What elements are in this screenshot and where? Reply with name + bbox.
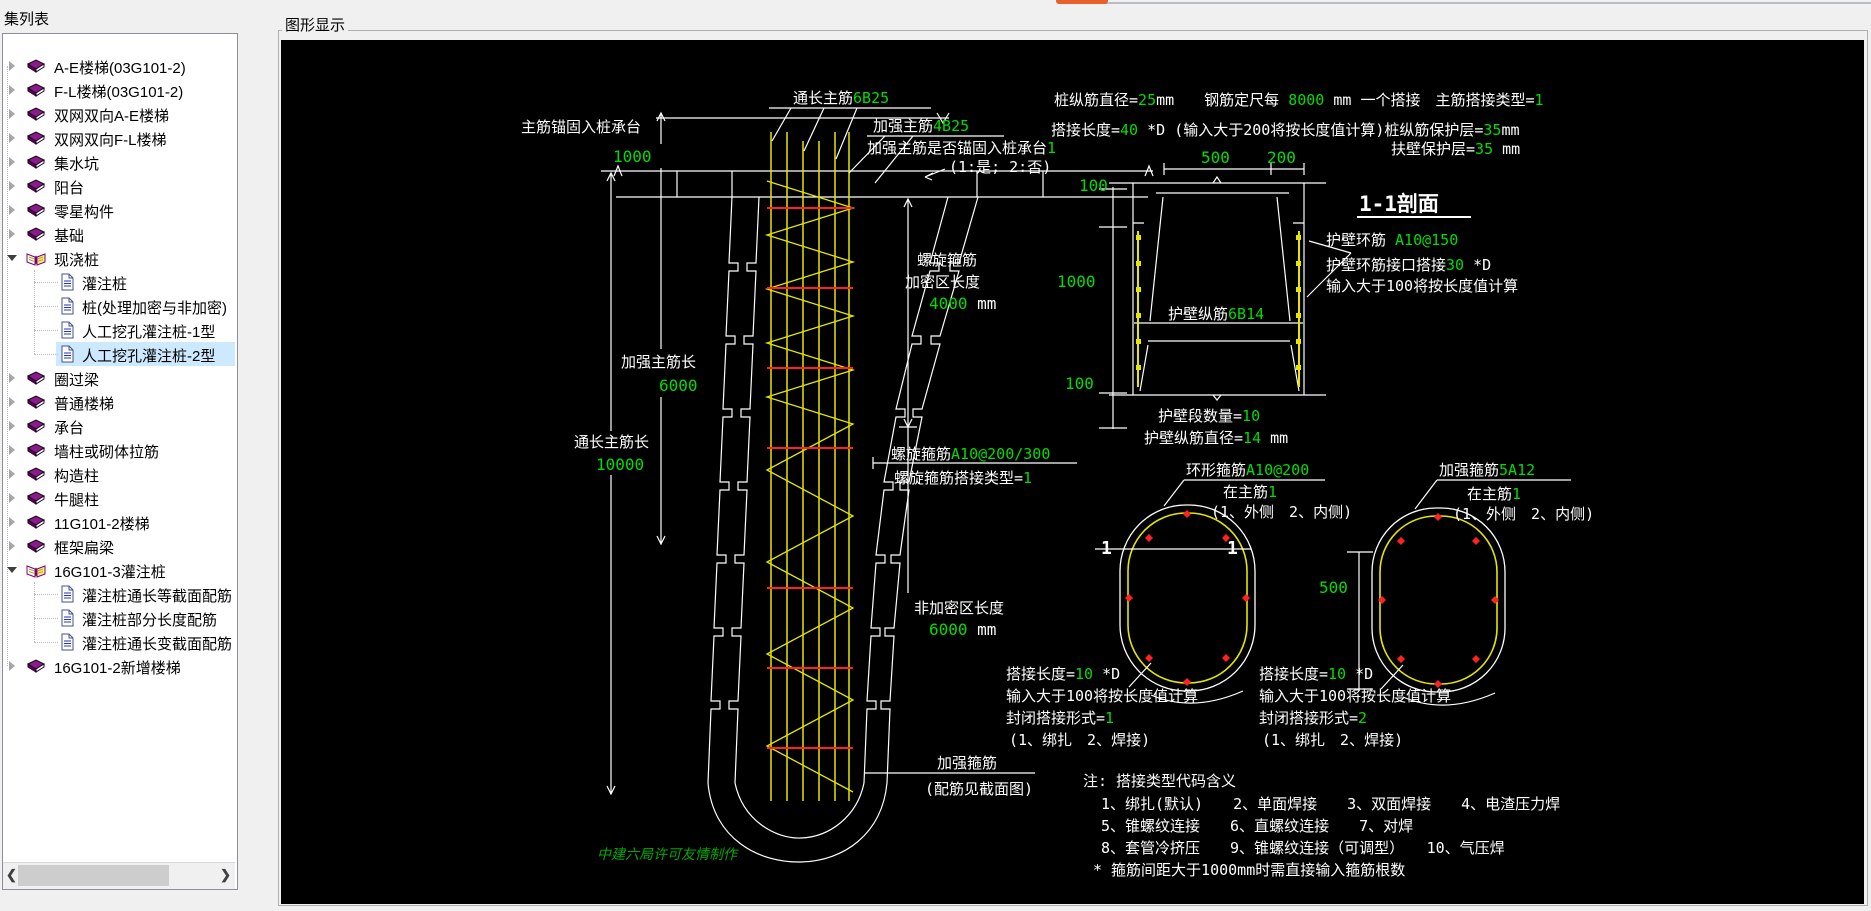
label-sparse-zone: 非加密区长度 bbox=[914, 599, 1004, 617]
tree-item-label: F-L楼梯(03G101-2) bbox=[54, 81, 183, 102]
scrollbar-thumb[interactable] bbox=[18, 865, 169, 886]
tree-item-23[interactable]: 灌注桩部分长度配筋 bbox=[4, 606, 235, 630]
tree-item-label: 11G101-2楼梯 bbox=[54, 513, 150, 534]
label-bottom-hoop-note: (配筋见截面图) bbox=[925, 780, 1033, 798]
chevron-right-icon[interactable] bbox=[9, 133, 15, 143]
lap-left-form: 封闭搭接形式=1 bbox=[1006, 709, 1114, 727]
tree-item-label: A-E楼梯(03G101-2) bbox=[54, 57, 186, 78]
label-wall-count: 护壁段数量=10 bbox=[1158, 407, 1260, 425]
tree-guide-stub bbox=[34, 642, 58, 643]
chevron-right-icon[interactable] bbox=[9, 157, 15, 167]
tree-item-24[interactable]: 灌注桩通长变截面配筋 bbox=[4, 630, 235, 654]
tree-item-18[interactable]: 牛腿柱 bbox=[4, 486, 235, 510]
sidebar-title: 集列表 bbox=[1, 8, 52, 29]
tree-item-label: 构造柱 bbox=[54, 465, 99, 486]
book-icon bbox=[25, 657, 47, 675]
chevron-right-icon[interactable] bbox=[9, 661, 15, 671]
open-book-icon bbox=[25, 249, 47, 267]
book-icon bbox=[25, 465, 47, 483]
label-wall-hoop: 护壁环筋 A10@150 bbox=[1326, 231, 1458, 249]
chevron-right-icon[interactable] bbox=[9, 493, 15, 503]
tree-item-label: 灌注桩 bbox=[82, 273, 127, 294]
book-icon bbox=[25, 441, 47, 459]
label-wall-vbars: 护壁纵筋6B14 bbox=[1168, 305, 1264, 323]
book-icon bbox=[25, 393, 47, 411]
scroll-right-button[interactable]: ❯ bbox=[220, 867, 231, 883]
book-icon bbox=[25, 153, 47, 171]
lap-right-form: 封闭搭接形式=2 bbox=[1259, 709, 1367, 727]
tree-item-label: 墙柱或砌体拉筋 bbox=[54, 441, 159, 462]
lap-left-note: 输入大于100将按长度值计算 bbox=[1006, 687, 1198, 705]
section-title: 1-1剖面 bbox=[1359, 192, 1439, 216]
label-bottom-hoop: 加强箍筋 bbox=[937, 754, 997, 772]
tree-item-label: 16G101-2新增楼梯 bbox=[54, 657, 181, 678]
tree-guide-stub bbox=[34, 354, 58, 355]
section-mark-right: 1 bbox=[1227, 538, 1238, 559]
strengthen-stirrup-options: (1、外侧 2、内侧) bbox=[1453, 505, 1594, 523]
tree-item-12[interactable]: 人工挖孔灌注桩-2型 bbox=[4, 342, 235, 366]
atlas-list-panel: 集列表 A-E楼梯(03G101-2)F-L楼梯(03G101-2)双网双向A-… bbox=[2, 33, 238, 890]
book-icon bbox=[25, 129, 47, 147]
tree-item-label: 集水坑 bbox=[54, 153, 99, 174]
book-icon bbox=[25, 225, 47, 243]
book-icon bbox=[25, 417, 47, 435]
lap-left-options: (1、绑扎 2、焊接) bbox=[1009, 731, 1150, 749]
tree-item-label: 灌注桩部分长度配筋 bbox=[82, 609, 217, 630]
chevron-right-icon[interactable] bbox=[9, 469, 15, 479]
dim-oval-500: 500 bbox=[1319, 578, 1348, 597]
tree-item-9[interactable]: 灌注桩 bbox=[4, 270, 235, 294]
document-icon bbox=[60, 321, 75, 339]
dim-100-top: 100 bbox=[1079, 176, 1108, 195]
chevron-right-icon[interactable] bbox=[9, 61, 15, 71]
tree-item-2[interactable]: 双网双向A-E楼梯 bbox=[4, 102, 235, 126]
book-icon bbox=[25, 201, 47, 219]
strengthen-stirrup-position: 在主筋1 bbox=[1467, 485, 1521, 503]
param-line-2: 搭接长度=40 *D (输入大于200将按长度值计算)桩纵筋保护层=35mm bbox=[1051, 121, 1520, 139]
label-anchor-options: (1:是; 2:否) bbox=[949, 158, 1051, 176]
tree-item-label: 牛腿柱 bbox=[54, 489, 99, 510]
chevron-right-icon[interactable] bbox=[9, 421, 15, 431]
tree-guide-stub bbox=[34, 306, 58, 307]
tree-item-17[interactable]: 构造柱 bbox=[4, 462, 235, 486]
chevron-right-icon[interactable] bbox=[9, 85, 15, 95]
tree-item-22[interactable]: 灌注桩通长等截面配筋 bbox=[4, 582, 235, 606]
chevron-down-icon[interactable] bbox=[7, 255, 17, 261]
book-icon bbox=[25, 489, 47, 507]
tree-item-label: 圈过梁 bbox=[54, 369, 99, 390]
annotation-texts: 通长主筋6B25 加强主筋4B25 加强主筋是否锚固入桩承台1 (1:是; 2:… bbox=[521, 89, 1594, 879]
book-icon bbox=[25, 513, 47, 531]
label-dense-zone: 加密区长度 bbox=[905, 273, 980, 291]
label-wall-diameter: 护壁纵筋直径=14 mm bbox=[1144, 429, 1288, 447]
book-icon bbox=[25, 105, 47, 123]
chevron-right-icon[interactable] bbox=[9, 205, 15, 215]
tree-item-5[interactable]: 阳台 bbox=[4, 174, 235, 198]
ring-stirrup-options: (1、外侧 2、内侧) bbox=[1211, 503, 1352, 521]
tree-item-15[interactable]: 承台 bbox=[4, 414, 235, 438]
graphic-display-panel: 图形显示 bbox=[278, 30, 1868, 906]
note-line-3: 8、套管冷挤压 9、锥螺纹连接（可调型） 10、气压焊 bbox=[1101, 839, 1505, 857]
tree-item-label: 双网双向F-L楼梯 bbox=[54, 129, 167, 150]
tree-item-4[interactable]: 集水坑 bbox=[4, 150, 235, 174]
tree-item-label: 灌注桩通长变截面配筋 bbox=[82, 633, 232, 654]
lap-right-options: (1、绑扎 2、焊接) bbox=[1262, 731, 1403, 749]
dim-1000: 1000 bbox=[1057, 272, 1096, 291]
chevron-right-icon[interactable] bbox=[9, 373, 15, 383]
book-icon bbox=[25, 537, 47, 555]
tree-guide-stub bbox=[34, 594, 58, 595]
param-line-1: 桩纵筋直径=25mm 钢筋定尺每 8000 mm 一个搭接 主筋搭接类型=1 bbox=[1054, 91, 1544, 109]
label-main-bar-length: 通长主筋长 bbox=[574, 433, 649, 451]
chevron-right-icon[interactable] bbox=[9, 397, 15, 407]
tree-guide-stub bbox=[34, 282, 58, 283]
tree-item-label: 普通楼梯 bbox=[54, 393, 114, 414]
label-anchor-length: 主筋锚固入桩承台 bbox=[521, 118, 641, 136]
tree-item-7[interactable]: 基础 bbox=[4, 222, 235, 246]
chevron-down-icon[interactable] bbox=[7, 567, 17, 573]
atlas-tree[interactable]: A-E楼梯(03G101-2)F-L楼梯(03G101-2)双网双向A-E楼梯双… bbox=[4, 37, 235, 857]
document-icon bbox=[60, 297, 75, 315]
document-icon bbox=[60, 585, 75, 603]
label-main-bars: 通长主筋6B25 bbox=[793, 89, 889, 107]
dim-100-bottom: 100 bbox=[1065, 374, 1094, 393]
book-icon bbox=[25, 177, 47, 195]
tree-item-25[interactable]: 16G101-2新增楼梯 bbox=[4, 654, 235, 678]
label-spiral-lap-type: 螺旋箍筋搭接类型=1 bbox=[894, 469, 1032, 487]
tree-item-label: 基础 bbox=[54, 225, 84, 246]
chevron-right-icon[interactable] bbox=[9, 109, 15, 119]
tree-item-label: 双网双向A-E楼梯 bbox=[54, 105, 169, 126]
label-spiral: 螺旋箍筋 bbox=[917, 251, 977, 269]
tree-item-14[interactable]: 普通楼梯 bbox=[4, 390, 235, 414]
chevron-right-icon[interactable] bbox=[9, 229, 15, 239]
tree-item-8[interactable]: 现浇桩 bbox=[4, 246, 235, 270]
label-spiral-spec: 螺旋箍筋A10@200/300 bbox=[891, 445, 1050, 463]
lap-right-note: 输入大于100将按长度值计算 bbox=[1259, 687, 1451, 705]
chevron-right-icon[interactable] bbox=[9, 541, 15, 551]
label-wall-hoop-note: 输入大于100将按长度值计算 bbox=[1326, 277, 1518, 295]
note-title: 注: 搭接类型代码含义 bbox=[1083, 772, 1236, 790]
ring-stirrup-position: 在主筋1 bbox=[1223, 483, 1277, 501]
tree-item-20[interactable]: 框架扁梁 bbox=[4, 534, 235, 558]
tree-guide-stub bbox=[34, 330, 58, 331]
ring-stirrup-label: 环形箍筋A10@200 bbox=[1186, 461, 1309, 479]
scroll-left-button[interactable]: ❮ bbox=[6, 867, 17, 883]
tree-item-label: 桩(处理加密与非加密) bbox=[82, 297, 227, 318]
value-extra-bar-length: 6000 bbox=[659, 376, 698, 395]
value-main-bar-length: 10000 bbox=[596, 455, 644, 474]
tree-item-label: 人工挖孔灌注桩-2型 bbox=[82, 345, 215, 366]
tree-item-label: 框架扁梁 bbox=[54, 537, 114, 558]
book-icon bbox=[25, 369, 47, 387]
value-dense-zone: 4000 mm bbox=[929, 294, 996, 313]
tree-item-16[interactable]: 墙柱或砌体拉筋 bbox=[4, 438, 235, 462]
strengthen-stirrup-label: 加强箍筋5A12 bbox=[1439, 461, 1535, 479]
tree-item-label: 阳台 bbox=[54, 177, 84, 198]
note-line-2: 5、锥螺纹连接 6、直螺纹连接 7、对焊 bbox=[1101, 817, 1413, 835]
tree-item-label: 灌注桩通长等截面配筋 bbox=[82, 585, 232, 606]
tree-item-label: 16G101-3灌注桩 bbox=[54, 561, 166, 582]
param-buttress-cover: 扶壁保护层=35 mm bbox=[1391, 140, 1520, 158]
lap-left-length: 搭接长度=10 *D bbox=[1006, 665, 1120, 683]
watermark: 中建六局许可友情制作 bbox=[597, 847, 739, 863]
dim-200: 200 bbox=[1267, 148, 1296, 167]
label-anchor-flag: 加强主筋是否锚固入桩承台1 bbox=[867, 139, 1056, 157]
pile-elevation-outline bbox=[601, 113, 1153, 862]
tree-item-label: 现浇桩 bbox=[54, 249, 99, 270]
tree-item-0[interactable]: A-E楼梯(03G101-2) bbox=[4, 54, 235, 78]
document-icon bbox=[60, 273, 75, 291]
open-book-icon bbox=[25, 561, 47, 579]
note-line-1: 1、绑扎(默认) 2、单面焊接 3、双面焊接 4、电渣压力焊 bbox=[1101, 795, 1560, 813]
chevron-right-icon[interactable] bbox=[9, 445, 15, 455]
tree-item-1[interactable]: F-L楼梯(03G101-2) bbox=[4, 78, 235, 102]
tree-item-3[interactable]: 双网双向F-L楼梯 bbox=[4, 126, 235, 150]
label-extra-bar-length: 加强主筋长 bbox=[621, 353, 696, 371]
toolbar-edge-line bbox=[1080, 2, 1871, 4]
value-anchor-length: 1000 bbox=[613, 147, 652, 166]
label-extra-bars: 加强主筋4B25 bbox=[873, 117, 969, 135]
chevron-right-icon[interactable] bbox=[9, 181, 15, 191]
horizontal-scrollbar[interactable]: ❮ ❯ bbox=[3, 862, 235, 889]
book-icon bbox=[25, 57, 47, 75]
dim-500: 500 bbox=[1201, 148, 1230, 167]
tree-item-10[interactable]: 桩(处理加密与非加密) bbox=[4, 294, 235, 318]
tree-item-label: 承台 bbox=[54, 417, 84, 438]
tree-item-13[interactable]: 圈过梁 bbox=[4, 366, 235, 390]
tree-item-21[interactable]: 16G101-3灌注桩 bbox=[4, 558, 235, 582]
tree-item-label: 人工挖孔灌注桩-1型 bbox=[82, 321, 215, 342]
drawing-canvas[interactable]: 通长主筋6B25 加强主筋4B25 加强主筋是否锚固入桩承台1 (1:是; 2:… bbox=[281, 40, 1864, 904]
app-window: 集列表 A-E楼梯(03G101-2)F-L楼梯(03G101-2)双网双向A-… bbox=[0, 0, 1871, 911]
toolbar-accent-fragment bbox=[1056, 0, 1108, 4]
value-sparse-zone: 6000 mm bbox=[929, 620, 996, 639]
document-icon bbox=[60, 609, 75, 627]
document-icon bbox=[60, 345, 75, 363]
tree-item-19[interactable]: 11G101-2楼梯 bbox=[4, 510, 235, 534]
note-asterisk: * 箍筋间距大于1000mm时需直接输入箍筋根数 bbox=[1093, 861, 1405, 879]
book-icon bbox=[25, 81, 47, 99]
rebar-cage bbox=[767, 132, 853, 801]
chevron-right-icon[interactable] bbox=[9, 517, 15, 527]
lap-right-length: 搭接长度=10 *D bbox=[1259, 665, 1373, 683]
tree-item-label: 零星构件 bbox=[54, 201, 114, 222]
label-wall-hoop-lap: 护壁环筋接口搭接30 *D bbox=[1326, 256, 1491, 274]
document-icon bbox=[60, 633, 75, 651]
strengthen-stirrup-lines bbox=[767, 208, 853, 748]
tree-item-11[interactable]: 人工挖孔灌注桩-1型 bbox=[4, 318, 235, 342]
tree-guide-stub bbox=[34, 618, 58, 619]
viewer-title: 图形显示 bbox=[282, 14, 348, 35]
tree-item-6[interactable]: 零星构件 bbox=[4, 198, 235, 222]
section-mark-left: 1 bbox=[1101, 538, 1112, 559]
